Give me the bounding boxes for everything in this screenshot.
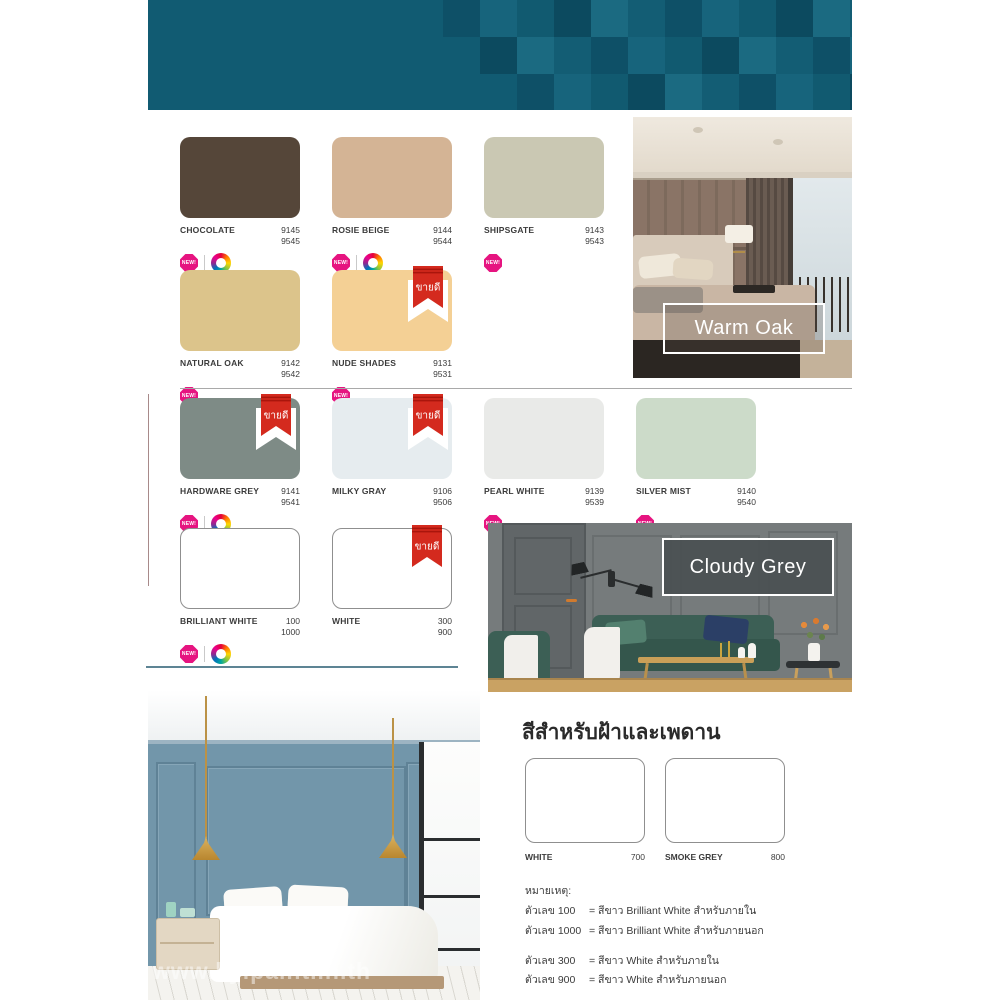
color-swatch-card-silver-mist: SILVER MIST91409540NEW! [636,398,756,535]
swatch-code-numbers: 91419541 [281,486,300,509]
ceiling-section-title: สีสำหรับฝ้าและเพดาน [522,716,720,749]
ceiling-swatch-card-white: WHITE700 [525,758,645,862]
brochure-page: CHOCOLATE91459545NEW!ROSIE BEIGE91449544… [0,0,1000,1000]
swatch-code-numbers: 91429542 [281,358,300,381]
swatch-code-numbers: 300900 [438,616,452,639]
swatch-code-numbers: 91409540 [737,486,756,509]
blue-bedroom-photo: www.kyipaint.in.th [148,690,480,1000]
svg-text:ขายดี: ขายดี [264,410,289,422]
swatch-chocolate [180,137,300,218]
notes-block: หมายเหตุ: ตัวเลข 100= สีขาว Brilliant Wh… [525,882,764,1000]
ceiling-swatch-code: 700 [631,852,645,862]
ceiling-swatch-name: WHITE [525,852,552,862]
mosaic-square [702,74,739,110]
swatch-meta: HARDWARE GREY91419541 [180,486,300,509]
mosaic-square [739,74,776,110]
note-line: ตัวเลข 300= สีขาว White สำหรับภายใน [525,952,764,969]
mosaic-square [628,74,665,110]
swatch-code-numbers: 91439543 [585,225,604,248]
mosaic-square [850,0,852,37]
swatch-meta: BRILLIANT WHITE1001000 [180,616,300,639]
notes-title: หมายเหตุ: [525,882,764,899]
swatch-rosie-beige [332,137,452,218]
mosaic-square [591,0,628,37]
swatch-hardware-grey: ขายดี [180,398,300,479]
mosaic-square [813,37,850,74]
door-handle [566,599,577,602]
notes-group: ตัวเลข 100= สีขาว Brilliant White สำหรับ… [525,902,764,939]
color-swatch-card-shipsgate: SHIPSGATE91439543NEW! [484,137,604,274]
ceiling-swatch-card-smoke-grey: SMOKE GREY800 [665,758,785,862]
ceiling [633,117,852,175]
swatch-name-label: CHOCOLATE [180,225,235,235]
wood-floor [488,678,852,692]
swatch-name-label: ROSIE BEIGE [332,225,389,235]
window-bar [424,895,480,898]
mosaic-square [628,37,665,74]
recessed-light [773,139,783,145]
swatch-meta: MILKY GRAY91069506 [332,486,452,509]
color-swatch-card-rosie-beige: ROSIE BEIGE91449544NEW! [332,137,452,274]
mosaic-square [776,74,813,110]
swatch-code-numbers: 1001000 [281,616,300,639]
mosaic-square [850,37,852,74]
note-text: = สีขาว White สำหรับภายนอก [589,971,726,988]
mosaic-square [702,0,739,37]
notes-group: ตัวเลข 300= สีขาว White สำหรับภายในตัวเล… [525,952,764,989]
note-text: = สีขาว Brilliant White สำหรับภายใน [589,902,756,919]
mosaic-square [776,37,813,74]
color-swatch-card-white: ขายดีWHITE300900 [332,528,452,665]
mosaic-square [591,74,628,110]
swatch-milky-gray: ขายดี [332,398,452,479]
badge-separator [204,255,205,271]
swatch-brilliant-white [180,528,300,609]
swatch-name-label: WHITE [332,616,360,626]
ceiling-swatch-meta: SMOKE GREY800 [665,852,785,862]
swatch-meta: NATURAL OAK91429542 [180,358,300,381]
svg-text:ขายดี: ขายดี [416,410,441,422]
mosaic-square [517,74,554,110]
mosaic-square [813,74,850,110]
palette-row: ขายดีHARDWARE GREY91419541NEW! ขายดีMILK… [180,398,756,535]
note-code: ตัวเลข 100 [525,902,589,919]
bestseller-ribbon: ขายดี [406,266,450,324]
recessed-light [693,127,703,133]
svg-text:ขายดี: ขายดี [415,541,440,553]
color-swatch-card-nude-shades: ขายดีNUDE SHADES91319531NEW! [332,270,452,407]
bestseller-ribbon: ขายดี [254,394,298,452]
swatch-name-label: SILVER MIST [636,486,691,496]
swatch-badges: NEW! [180,643,300,665]
swatch-code-numbers: 91449544 [433,225,452,248]
ceiling-swatch-row: WHITE700SMOKE GREY800 [525,758,785,862]
watermark-text: www.kyipaint.in.th [152,958,371,985]
svg-text:ขายดี: ขายดี [416,282,441,294]
mosaic-square [665,37,702,74]
new-badge-icon: NEW! [180,645,198,663]
swatch-meta: NUDE SHADES91319531 [332,358,452,381]
ceiling-swatch-name: SMOKE GREY [665,852,723,862]
color-swatch-card-hardware-grey: ขายดีHARDWARE GREY91419541NEW! [180,398,300,535]
swatch-shipsgate [484,137,604,218]
vase-white [738,647,745,658]
note-text: = สีขาว Brilliant White สำหรับภายนอก [589,922,764,939]
swatch-meta: SILVER MIST91409540 [636,486,756,509]
swatch-white [525,758,645,843]
swatch-name-label: NATURAL OAK [180,358,244,368]
swatch-code-numbers: 91399539 [585,486,604,509]
pendant-wire [205,696,207,838]
mosaic-square [443,0,480,37]
mosaic-square [554,37,591,74]
coffee-table-top [638,657,754,663]
warm-oak-label-text: Warm Oak [695,317,794,340]
vase-white [748,643,756,658]
swatch-name-label: MILKY GRAY [332,486,386,496]
mosaic-square [665,0,702,37]
left-rule [148,394,149,586]
mosaic-square [776,0,813,37]
tray [733,285,775,293]
swatch-natural-oak [180,270,300,351]
swatch-code-numbers: 91319531 [433,358,452,381]
mosaic-square [480,37,517,74]
window-bar [424,838,480,841]
candlestick [728,641,730,657]
door-panel [514,537,572,595]
divider-line-blue [146,666,458,668]
decor-vase [166,902,176,917]
note-line: ตัวเลข 100= สีขาว Brilliant White สำหรับ… [525,902,764,919]
mosaic-square [517,37,554,74]
color-swatch-card-natural-oak: NATURAL OAK91429542NEW! [180,270,300,407]
cloudy-grey-label: Cloudy Grey [662,538,834,596]
mosaic-square [517,0,554,37]
flower-bouquet [796,617,834,645]
badge-separator [204,646,205,662]
bestseller-ribbon: ขายดี [406,394,450,452]
swatch-meta: CHOCOLATE91459545 [180,225,300,248]
note-line: ตัวเลข 900= สีขาว White สำหรับภายนอก [525,971,764,988]
swatch-name-label: NUDE SHADES [332,358,396,368]
note-code: ตัวเลข 1000 [525,922,589,939]
mosaic-square [739,0,776,37]
cloudy-grey-photo: Cloudy Grey [488,523,852,692]
note-code: ตัวเลข 300 [525,952,589,969]
ceiling-swatch-code: 800 [771,852,785,862]
mosaic-square [591,37,628,74]
palette-row: BRILLIANT WHITE1001000NEW! ขายดีWHITE300… [180,528,452,665]
mosaic-square [480,0,517,37]
note-line: ตัวเลข 1000= สีขาว Brilliant White สำหรั… [525,922,764,939]
swatch-smoke-grey [665,758,785,843]
mosaic-square [628,0,665,37]
ceiling-swatch-meta: WHITE700 [525,852,645,862]
swatch-meta: WHITE300900 [332,616,452,639]
decor-box [180,908,195,917]
notes-lines: ตัวเลข 100= สีขาว Brilliant White สำหรับ… [525,902,764,988]
swatch-meta: PEARL WHITE91399539 [484,486,604,509]
pendant-wire [392,718,394,836]
swatch-white: ขายดี [332,528,452,609]
mosaic-square [665,74,702,110]
new-badge-icon: NEW! [484,254,502,272]
note-text: = สีขาว White สำหรับภายใน [589,952,719,969]
header-banner [148,0,852,110]
swatch-code-numbers: 91069506 [433,486,452,509]
badge-separator [356,255,357,271]
palette-row: NATURAL OAK91429542NEW! ขายดีNUDE SHADES… [180,270,452,407]
swatch-name-label: BRILLIANT WHITE [180,616,258,626]
warm-oak-label: Warm Oak [663,303,825,354]
mosaic-square [554,74,591,110]
ceiling [148,690,480,742]
pillow [672,258,713,281]
mosaic-square [850,74,852,110]
swatch-name-label: SHIPSGATE [484,225,534,235]
swatch-code-numbers: 91459545 [281,225,300,248]
table-lamp [725,225,753,243]
flower-vase [808,643,820,661]
color-swatch-card-pearl-white: PEARL WHITE91399539NEW! [484,398,604,535]
side-table [786,661,840,668]
mosaic-square [813,0,850,37]
swatch-pearl-white [484,398,604,479]
mosaic-square [739,37,776,74]
swatch-name-label: PEARL WHITE [484,486,545,496]
swatch-meta: ROSIE BEIGE91449544 [332,225,452,248]
color-swatch-card-chocolate: CHOCOLATE91459545NEW! [180,137,300,274]
swatch-nude-shades: ขายดี [332,270,452,351]
swatch-meta: SHIPSGATE91439543 [484,225,604,248]
mosaic-square [554,0,591,37]
divider-line [180,388,852,389]
candlestick [720,643,722,657]
note-code: ตัวเลข 900 [525,971,589,988]
nightstand-drawer [160,942,214,944]
color-swatch-card-milky-gray: ขายดีMILKY GRAY91069506 [332,398,452,535]
swatch-name-label: HARDWARE GREY [180,486,259,496]
color-wheel-icon [211,644,231,664]
cloudy-grey-label-text: Cloudy Grey [690,556,807,579]
mosaic-square [702,37,739,74]
color-swatch-card-brilliant-white: BRILLIANT WHITE1001000NEW! [180,528,300,665]
cushion-navy [703,615,749,644]
bestseller-ribbon: ขายดี [405,525,449,583]
palette-row: CHOCOLATE91459545NEW!ROSIE BEIGE91449544… [180,137,604,274]
swatch-silver-mist [636,398,756,479]
swatch-badges: NEW! [484,252,604,274]
warm-oak-photo: Warm Oak [633,117,852,378]
